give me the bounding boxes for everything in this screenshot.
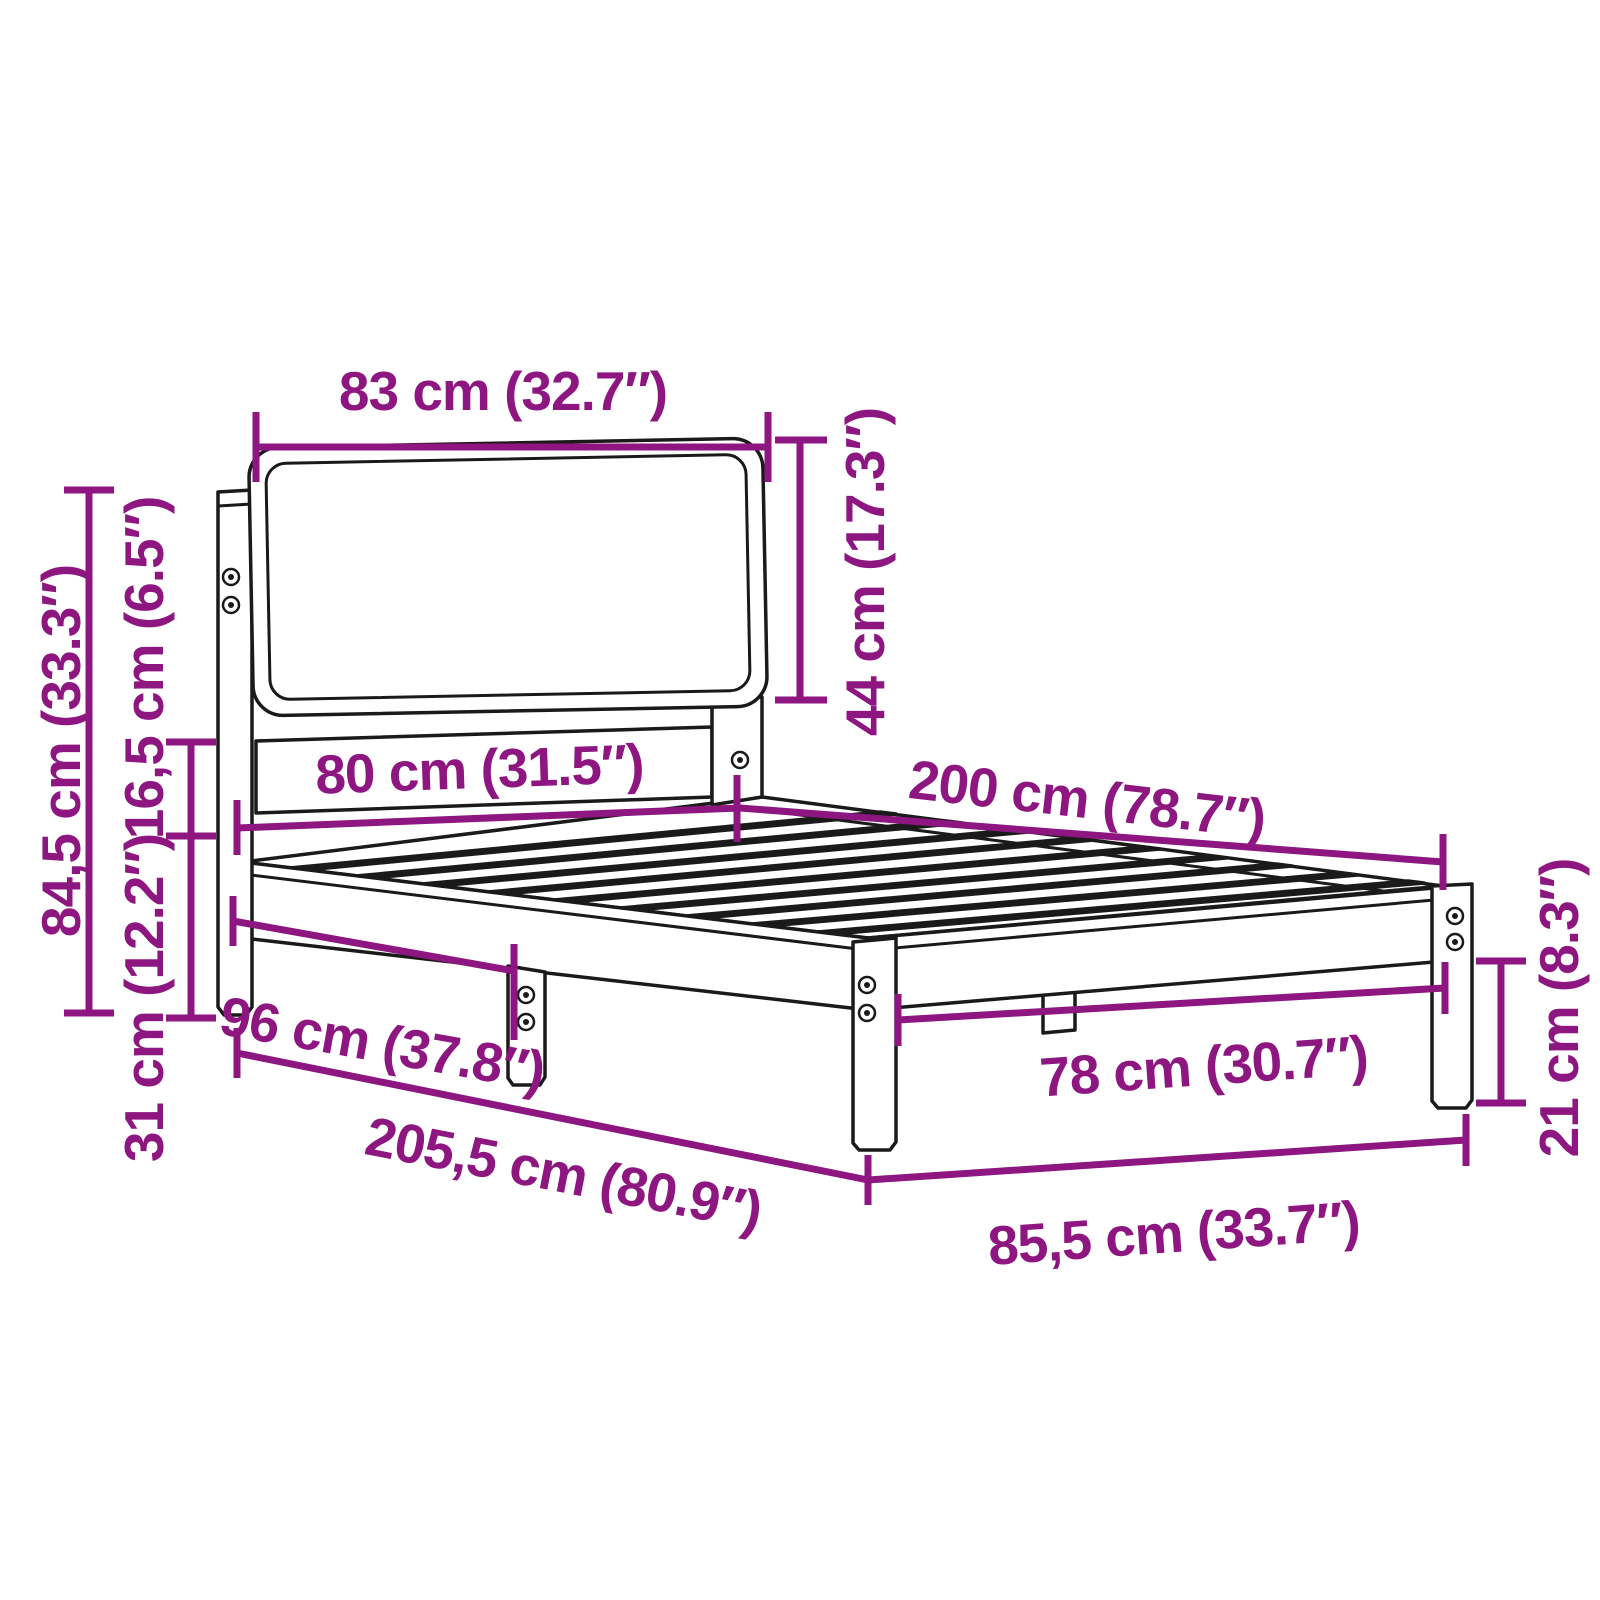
dimension-headboard-cushion-height: 44 cm (17.3″): [775, 408, 896, 736]
headboard-post-cap: [218, 504, 252, 506]
dimension-diagram-page: 83 cm (32.7″) 44 cm (17.3″) 84,5 cm (33.…: [0, 0, 1600, 1600]
headboard-cushion: [248, 438, 767, 716]
dim-headboard-width-label: 83 cm (32.7″): [339, 360, 667, 422]
cushion-outer: [248, 438, 767, 716]
dim-total-height-label: 84,5 cm (33.3″): [30, 565, 92, 937]
dim-bed-width-label: 80 cm (31.5″): [314, 732, 644, 805]
front-foot-leg: [853, 938, 896, 1150]
dim-total-length-label: 205,5 cm (80.9″): [361, 1105, 767, 1243]
dimension-total-width: 85,5 cm (33.7″): [868, 1114, 1466, 1277]
dimension-leg-height: 21 cm (8.3″): [1476, 859, 1590, 1158]
dim-leg-height-label: 21 cm (8.3″): [1528, 859, 1590, 1158]
dim-total-width-label: 85,5 cm (33.7″): [986, 1189, 1362, 1277]
dim-clearance-label: 31 cm (12.2″): [113, 834, 175, 1162]
dimension-headboard-total-height: 84,5 cm (33.3″): [30, 490, 114, 1013]
dim-cushion-height-label: 44 cm (17.3″): [834, 408, 896, 736]
dim-line: [775, 440, 827, 700]
bed-dimension-diagram: 83 cm (32.7″) 44 cm (17.3″) 84,5 cm (33.…: [0, 0, 1600, 1600]
dimension-under-bed-clearance: 31 cm (12.2″): [113, 834, 216, 1162]
dim-line: [868, 1114, 1466, 1180]
dim-foot-inner-width-label: 78 cm (30.7″): [1038, 1024, 1370, 1109]
dim-line: [1476, 961, 1526, 1103]
dim-rail-height-label: 16,5 cm (6.5″): [113, 497, 175, 840]
dimension-side-rail-height: 16,5 cm (6.5″): [113, 497, 216, 840]
